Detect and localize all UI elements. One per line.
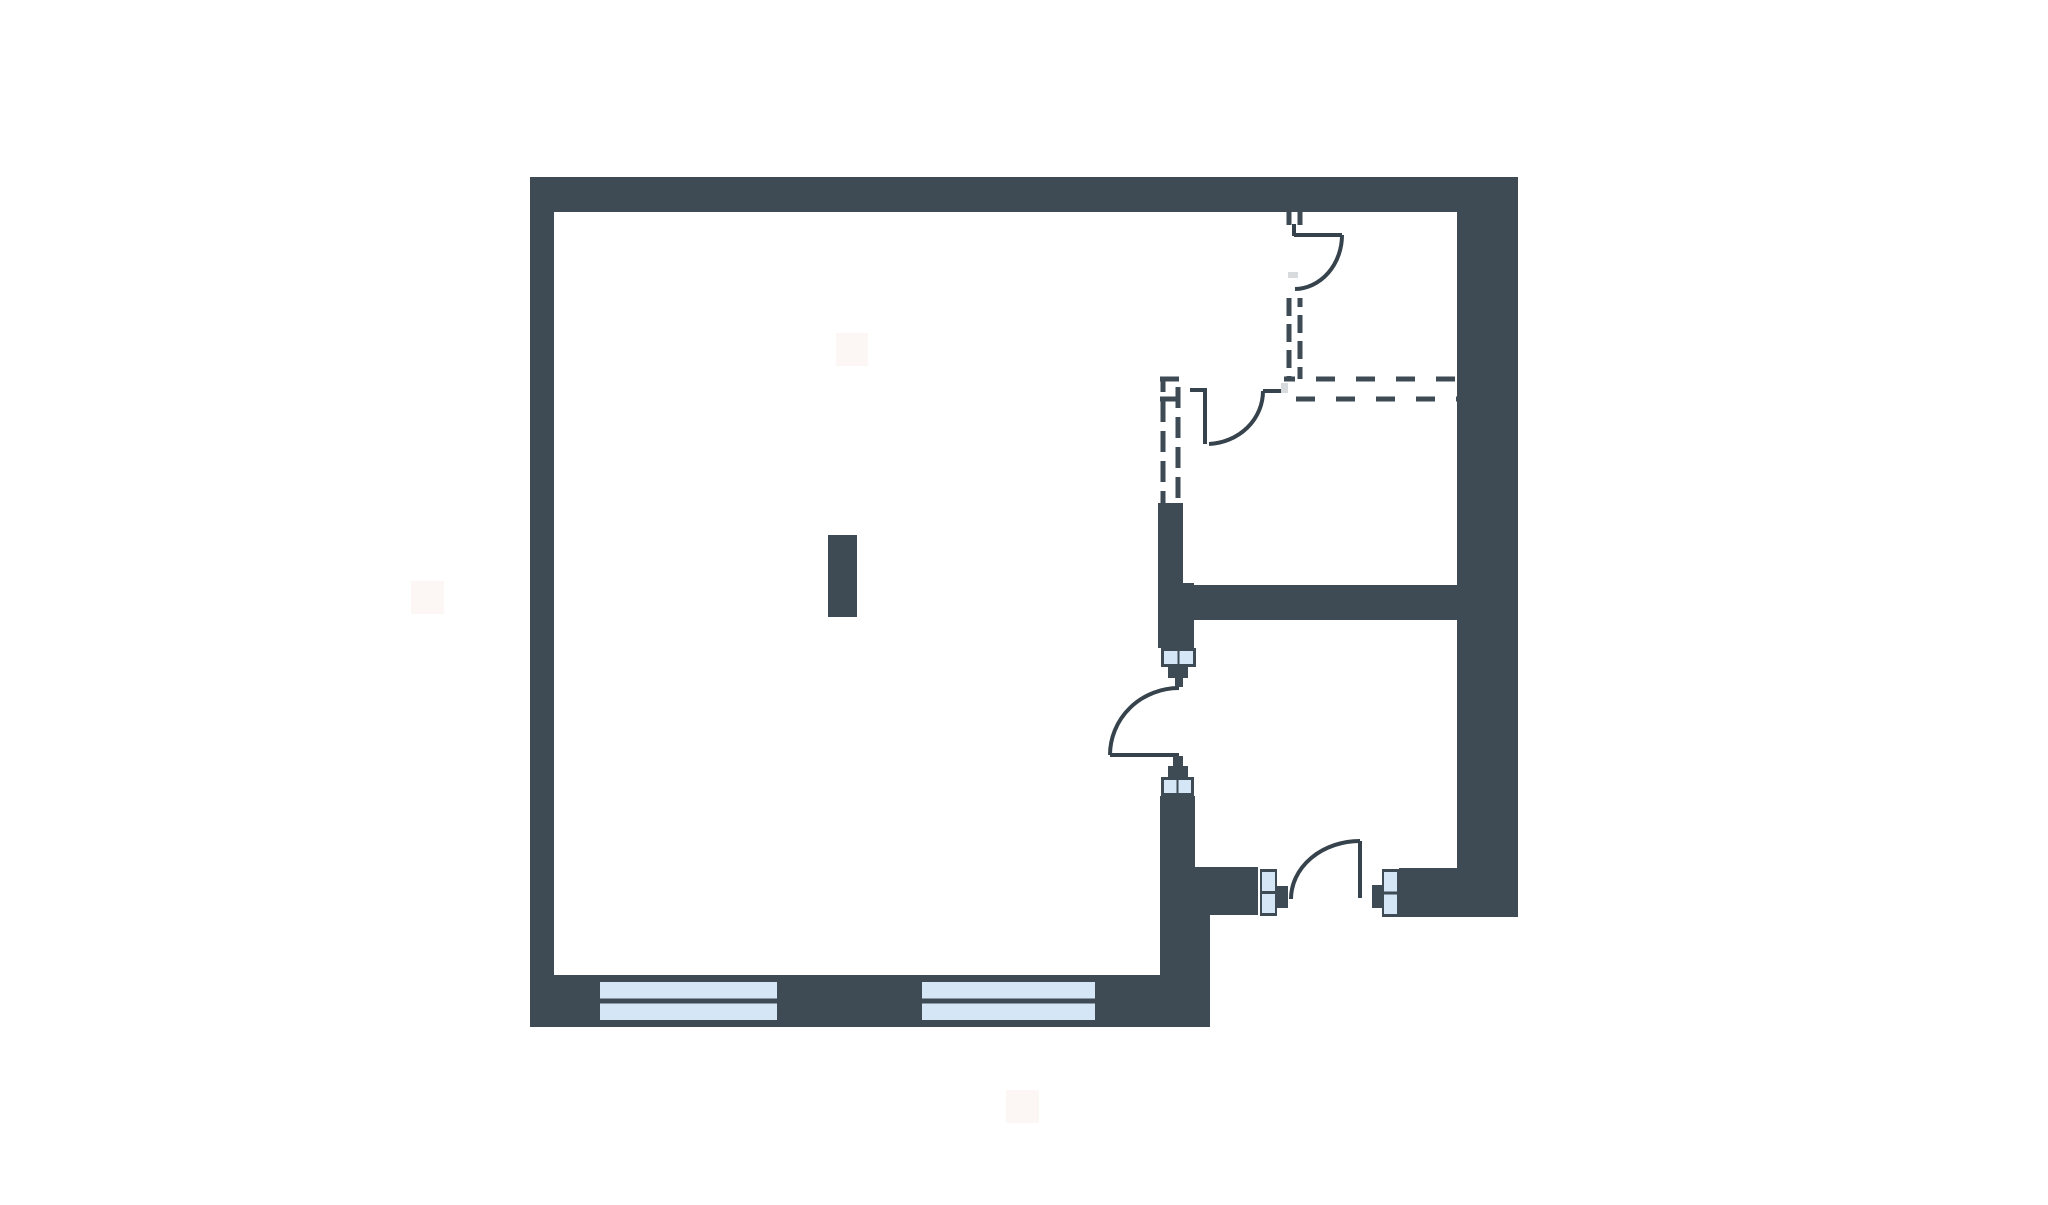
- marker-door-inner: [1281, 383, 1288, 393]
- jamb-window-entry-left: [1260, 869, 1277, 916]
- wall-c-upper: [1158, 503, 1183, 585]
- jamb-window-entry-right-pane-2: [1384, 895, 1397, 915]
- window-bottom-right-pane-2: [922, 1004, 1095, 1021]
- stub-entry-left: [1277, 886, 1288, 908]
- window-bottom-right-pane-1: [922, 982, 1095, 999]
- window-bottom-right: [917, 975, 1100, 1027]
- window-bottom-left-pane-2: [600, 1004, 777, 1021]
- jamb-window-lower-pane-1: [1164, 780, 1177, 793]
- stub-lower-door-block: [1168, 766, 1188, 777]
- jamb-window-entry-right-pane-1: [1384, 872, 1397, 892]
- jamb-window-lower: [1161, 777, 1194, 796]
- stub-entry-right: [1372, 885, 1382, 908]
- pillar-group: [828, 535, 857, 617]
- floor-plan-page: [0, 0, 2048, 1205]
- jamb-window-lower-pane-2: [1179, 780, 1192, 793]
- jamb-window-entry-right: [1382, 869, 1399, 917]
- jamb-window-entry-left-pane-1: [1262, 872, 1275, 891]
- wall-left: [530, 177, 554, 1027]
- jamb-window-upper-pane-2: [1180, 651, 1194, 664]
- window-bottom-left: [595, 975, 782, 1027]
- artifact-left: [411, 581, 444, 614]
- pillar: [828, 535, 857, 617]
- jamb-window-entry-left-pane-2: [1262, 894, 1275, 913]
- wall-c-mid: [1160, 796, 1195, 867]
- stub-lower-door-small: [1173, 756, 1183, 766]
- floor-plan-svg: [0, 0, 2048, 1205]
- artifact-top: [836, 333, 868, 366]
- wall-c-column: [1160, 890, 1210, 1027]
- artifact-bottom: [1006, 1090, 1039, 1123]
- stub-upper-door-block: [1168, 667, 1188, 678]
- window-bottom-left-pane-1: [600, 982, 777, 999]
- wall-entry-right: [1399, 868, 1518, 917]
- stub-upper-door-small: [1175, 678, 1183, 687]
- jamb-window-upper: [1161, 648, 1196, 667]
- marker-door-upper: [1288, 272, 1298, 278]
- wall-c-junction: [1158, 583, 1194, 648]
- jamb-window-upper-pane-1: [1164, 651, 1178, 664]
- wall-top: [530, 177, 1518, 212]
- wall-mid-horizontal: [1158, 585, 1457, 620]
- wall-right: [1457, 177, 1518, 917]
